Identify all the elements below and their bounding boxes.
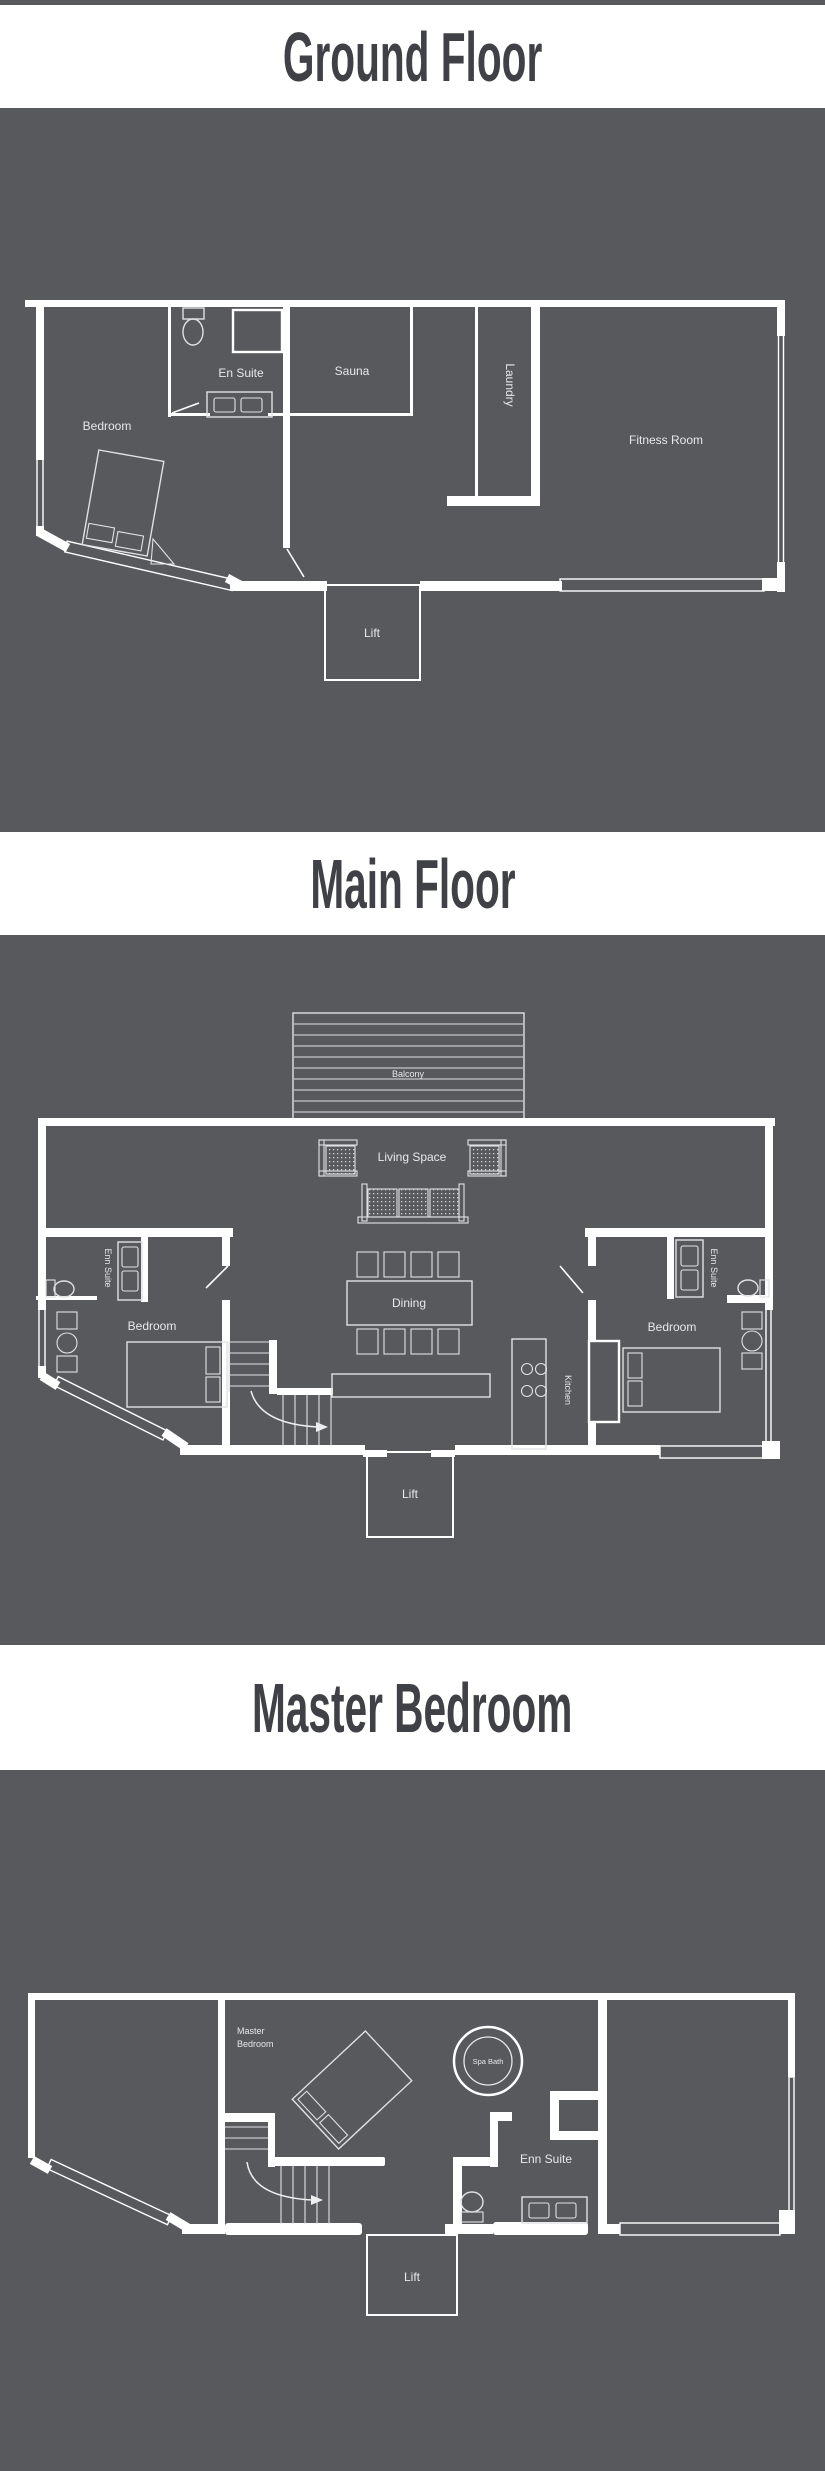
master-bedroom-title: Master Bedroom [252,1673,572,1743]
ground-floor-plan: Bedroom En Suite Sauna Laundry Fitness R… [0,108,825,832]
bedroom-right-door-swing [560,1266,583,1293]
floor-plan-page: Ground Floor [0,0,825,2471]
room-label-master-line1: Master [237,2026,265,2036]
bed-right-icon [623,1348,720,1412]
room-label-bedroom-left: Bedroom [128,1319,177,1333]
master-interior-walls [218,1993,607,2234]
room-label-spa-bath: Spa Bath [473,2057,504,2066]
shower-icon [233,310,282,352]
room-label-laundry: Laundry [503,363,517,406]
room-label-en-suite: Enn Suite [520,2152,572,2166]
ensuite-right-fixtures [676,1240,769,1297]
main-floor-title: Main Floor [310,849,515,919]
ground-interior-walls [168,307,540,548]
room-label-bedroom: Bedroom [83,419,132,433]
room-label-en-suite-left: Enn Suite [103,1248,113,1287]
room-label-lift: Lift [404,2270,421,2284]
balcony-deck [293,1013,524,1121]
room-label-en-suite: En Suite [218,366,264,380]
toilet-icon [183,308,204,345]
toilet-icon [461,2192,483,2222]
ground-floor-title-band: Ground Floor [0,5,825,108]
ground-room-labels: Bedroom En Suite Sauna Laundry Fitness R… [83,363,703,640]
ensuite-door-swing [172,403,199,413]
triangle-marker [151,539,174,564]
master-bed-icon [292,2031,412,2149]
master-windows [47,2077,794,2235]
corner-wall-segment [39,532,68,548]
room-label-bedroom-right: Bedroom [648,1320,697,1334]
armchair-left-icon [319,1140,357,1176]
master-bedroom-title-band: Master Bedroom [0,1645,825,1770]
room-label-balcony: Balcony [392,1069,425,1079]
room-label-lift: Lift [364,626,381,640]
bedroom-left-door-swing [206,1266,228,1288]
ground-floor-title: Ground Floor [283,22,542,92]
room-label-master-line2: Bedroom [237,2039,274,2049]
master-bedroom-plan: Spa Bath Master Bedroom Enn Suite Lift [0,1770,825,2471]
room-label-lift: Lift [402,1487,419,1501]
main-floor-plan: Balcony Living Space Enn Suite Bedroom D… [0,935,825,1645]
room-label-en-suite-right: Enn Suite [709,1248,719,1287]
main-room-labels: Balcony Living Space Enn Suite Bedroom D… [103,1069,719,1501]
room-label-sauna: Sauna [335,364,370,378]
room-label-dining: Dining [392,1296,426,1310]
vanity-icon [207,392,272,417]
sofa-icon [358,1184,468,1223]
staircase [225,2127,329,2224]
nightstands-right [742,1312,762,1369]
room-label-fitness-room: Fitness Room [629,433,703,447]
spa-bath-icon: Spa Bath [454,2027,522,2095]
counter-island [332,1374,490,1397]
room-label-living-space: Living Space [378,1150,447,1164]
room-label-kitchen: Kitchen [563,1375,573,1405]
bed-left-icon [127,1342,227,1407]
vanity-icon [522,2197,587,2223]
kitchen-island [512,1339,547,1449]
armchair-right-icon [468,1140,506,1176]
staircase [229,1340,333,1445]
main-floor-title-band: Main Floor [0,832,825,935]
wardrobe-icon [589,1341,619,1422]
ensuite-left-fixtures [46,1242,142,1300]
nightstands-left [57,1312,77,1372]
bedroom-door-swing [287,549,304,577]
master-outer-walls [28,1993,795,2235]
bed-icon [82,450,164,556]
